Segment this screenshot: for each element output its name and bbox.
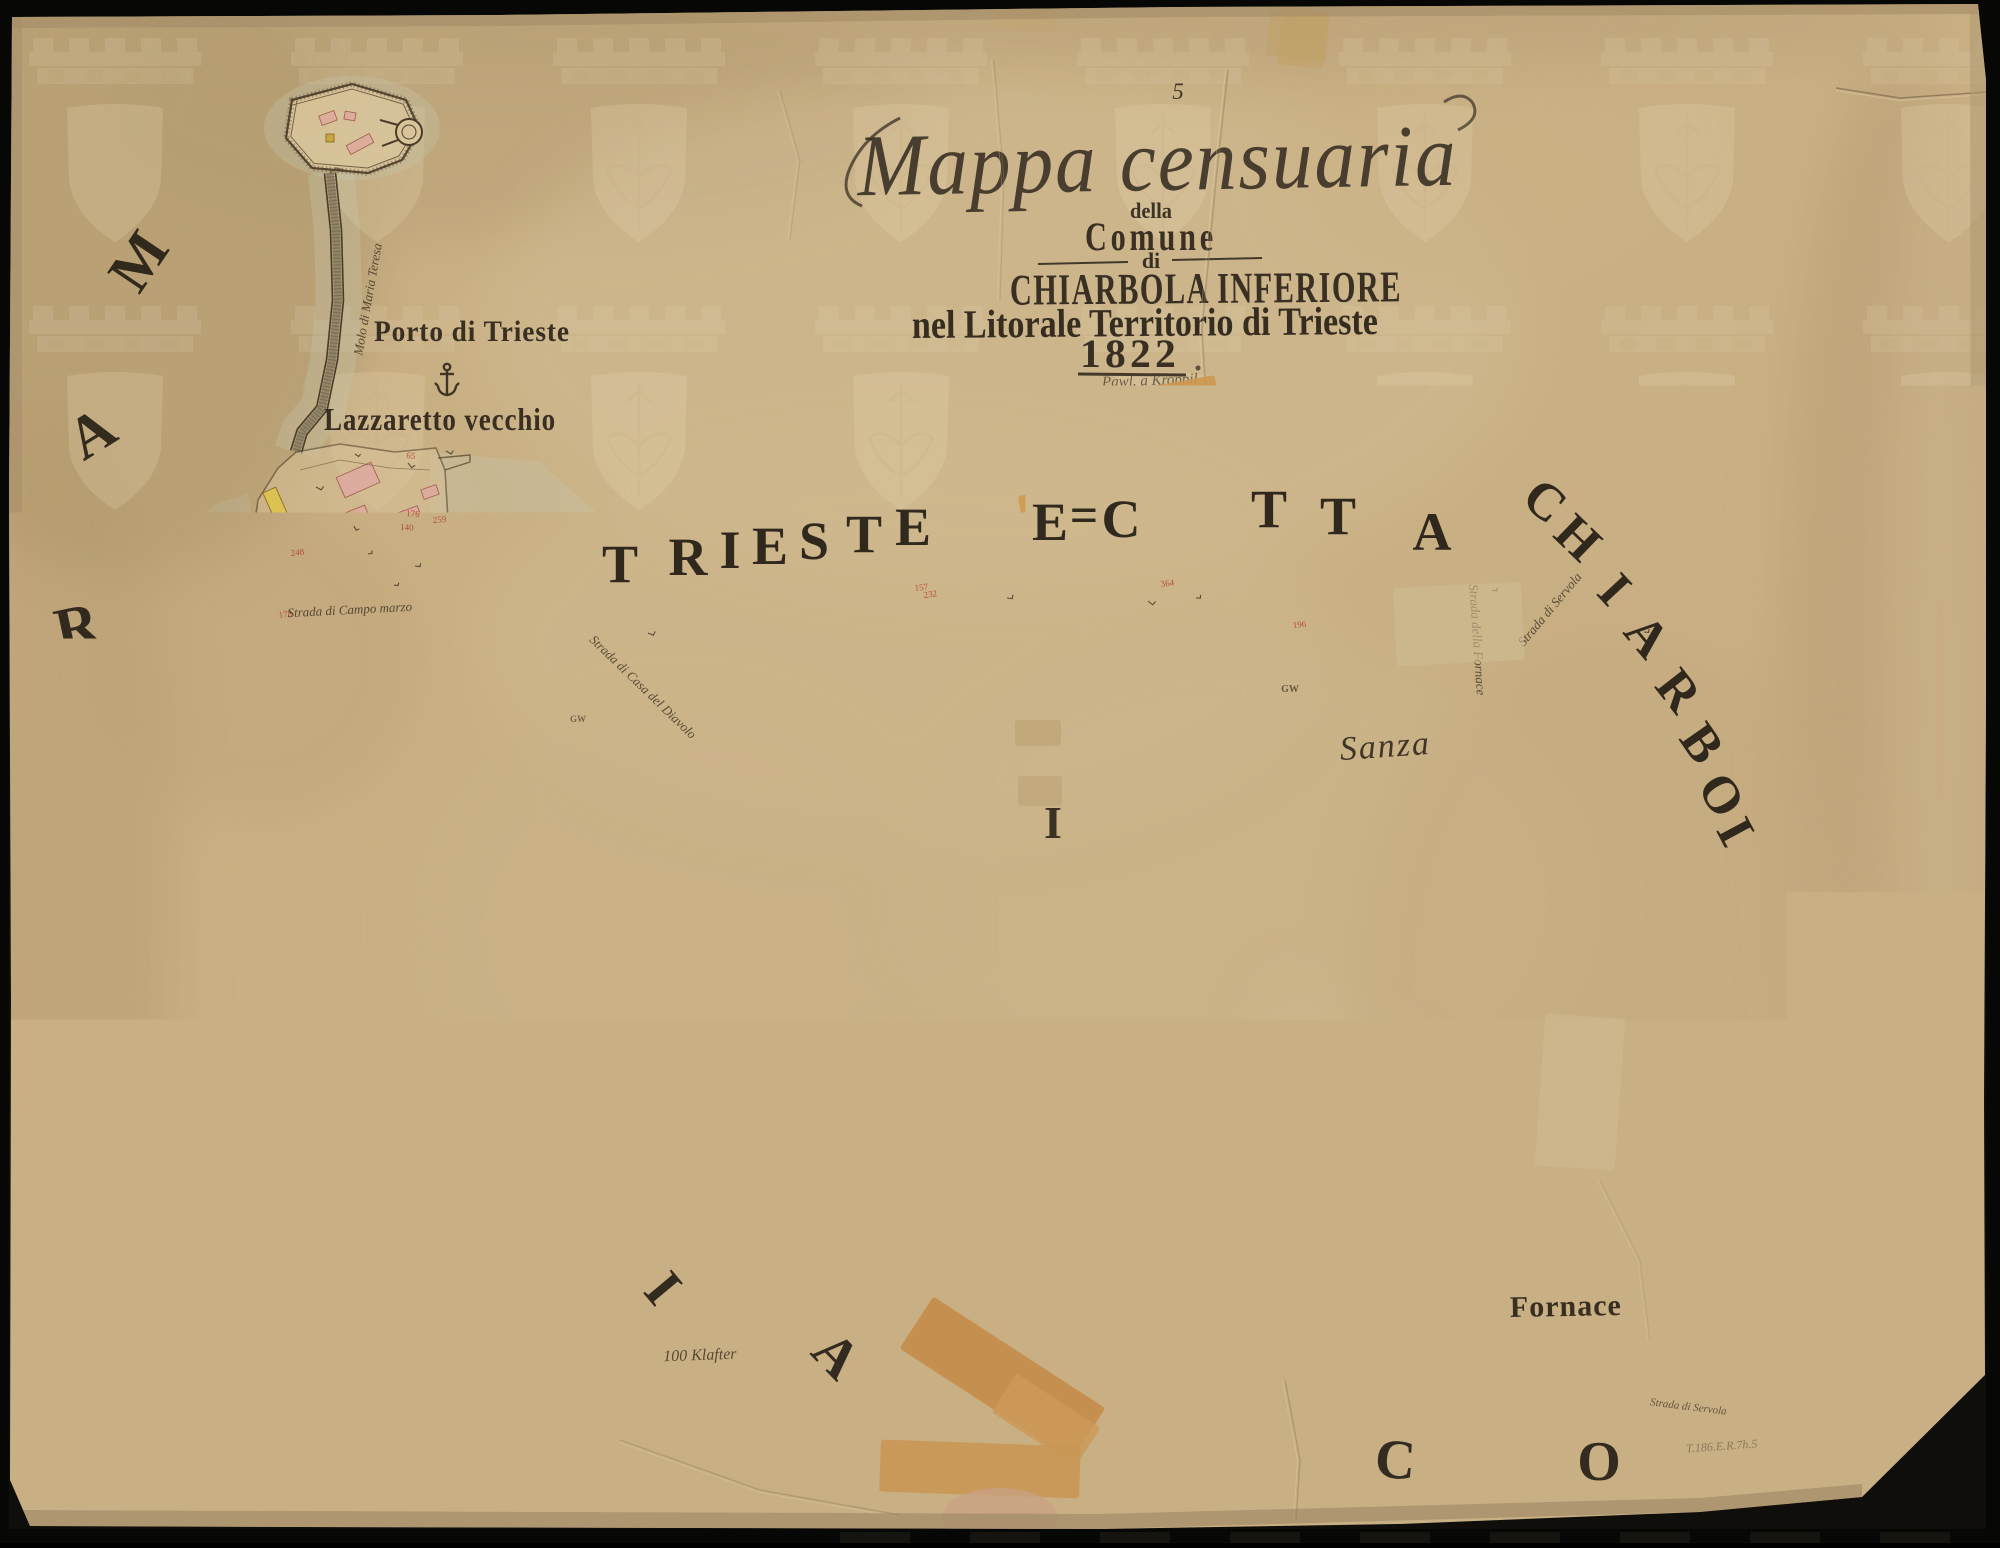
svg-text:143: 143 xyxy=(517,678,532,689)
svg-text:86: 86 xyxy=(994,1238,1004,1248)
svg-text:101: 101 xyxy=(1873,876,1887,887)
svg-text:154: 154 xyxy=(685,704,699,714)
svg-text:22: 22 xyxy=(259,832,268,842)
svg-text:19: 19 xyxy=(1145,1279,1156,1290)
svg-text:242: 242 xyxy=(1508,751,1522,761)
svg-text:Sanza: Sanza xyxy=(1338,725,1432,768)
svg-text:201: 201 xyxy=(688,768,702,779)
svg-text:4: 4 xyxy=(325,1412,329,1421)
svg-text:9: 9 xyxy=(325,1475,329,1484)
svg-text:280: 280 xyxy=(493,717,508,728)
svg-text:233: 233 xyxy=(1503,880,1517,890)
svg-text:207: 207 xyxy=(1119,999,1133,1009)
svg-text:T: T xyxy=(602,534,638,594)
svg-text:305: 305 xyxy=(1683,1364,1698,1375)
svg-text:T: T xyxy=(1320,486,1356,546)
svg-text:381: 381 xyxy=(1113,1159,1127,1170)
svg-text:79: 79 xyxy=(1049,1238,1059,1249)
svg-text:140: 140 xyxy=(400,522,414,532)
svg-text:I: I xyxy=(719,520,740,580)
svg-text:279: 279 xyxy=(1412,1240,1427,1251)
svg-text:53: 53 xyxy=(1037,656,1047,667)
svg-text:190: 190 xyxy=(1144,1300,1158,1310)
svg-text:124: 124 xyxy=(1686,970,1701,981)
svg-text:199: 199 xyxy=(1216,1321,1231,1332)
svg-text:294: 294 xyxy=(540,662,554,672)
svg-text:1: 1 xyxy=(325,1374,329,1383)
svg-text:267: 267 xyxy=(1221,1345,1235,1355)
svg-text:Fornace: Fornace xyxy=(1510,1289,1623,1324)
svg-text:40: 40 xyxy=(238,1354,248,1365)
svg-text:3: 3 xyxy=(324,1399,329,1408)
svg-text:382: 382 xyxy=(1324,1125,1338,1136)
svg-text:74: 74 xyxy=(1814,769,1824,780)
svg-text:Lazzaretto vecchio: Lazzaretto vecchio xyxy=(324,401,556,437)
svg-text:237: 237 xyxy=(1083,788,1098,799)
svg-text:92: 92 xyxy=(1296,1102,1305,1112)
svg-text:35: 35 xyxy=(492,669,502,679)
svg-text:283: 283 xyxy=(1739,1166,1753,1176)
svg-text:60: 60 xyxy=(206,1354,216,1365)
svg-text:146: 146 xyxy=(276,678,291,689)
svg-text:6: 6 xyxy=(325,1437,329,1446)
svg-text:386: 386 xyxy=(976,1088,991,1099)
svg-text:281: 281 xyxy=(1278,1069,1292,1079)
svg-text:0: 0 xyxy=(303,1354,308,1365)
svg-text:196: 196 xyxy=(1292,619,1307,630)
svg-text:21: 21 xyxy=(1649,1057,1658,1067)
svg-text:5: 5 xyxy=(325,1425,329,1434)
svg-text:321: 321 xyxy=(1645,993,1659,1004)
svg-text:303: 303 xyxy=(1035,1246,1050,1257)
svg-text:78: 78 xyxy=(1290,1329,1300,1340)
svg-text:201: 201 xyxy=(1092,1092,1106,1103)
svg-text:327: 327 xyxy=(1023,1276,1038,1287)
svg-text:259: 259 xyxy=(432,514,447,525)
svg-text:St Andrea: St Andrea xyxy=(760,1163,881,1198)
svg-text:E: E xyxy=(752,516,788,576)
svg-text:32: 32 xyxy=(1334,993,1344,1004)
svg-text:50: 50 xyxy=(222,1354,232,1365)
svg-text:189: 189 xyxy=(1574,784,1588,794)
svg-text:T: T xyxy=(1251,479,1287,539)
svg-text:296: 296 xyxy=(934,646,949,657)
svg-text:20: 20 xyxy=(271,1354,281,1365)
svg-text:73: 73 xyxy=(1087,830,1097,841)
svg-text:163: 163 xyxy=(666,832,681,843)
svg-text:90: 90 xyxy=(158,1354,168,1365)
svg-text:380: 380 xyxy=(1306,874,1321,886)
svg-text:181: 181 xyxy=(1246,1347,1260,1358)
svg-text:Casa del Diavolo: Casa del Diavolo xyxy=(552,862,745,898)
svg-text:278: 278 xyxy=(804,1077,819,1088)
svg-text:248: 248 xyxy=(649,766,663,776)
svg-text:176: 176 xyxy=(406,508,421,519)
svg-text:Porto di Trieste: Porto di Trieste xyxy=(374,315,570,348)
svg-text:326: 326 xyxy=(360,863,375,875)
svg-text:384: 384 xyxy=(1197,841,1212,852)
svg-text:248: 248 xyxy=(290,547,305,558)
svg-text:56: 56 xyxy=(1013,1213,1023,1223)
svg-text:290: 290 xyxy=(1307,1120,1322,1131)
svg-text:362: 362 xyxy=(958,1115,972,1126)
svg-text:80: 80 xyxy=(174,1354,184,1365)
svg-text:146: 146 xyxy=(1109,1318,1124,1329)
svg-text:157: 157 xyxy=(914,581,929,593)
svg-text:364: 364 xyxy=(1160,577,1175,589)
svg-text:286: 286 xyxy=(1183,1135,1198,1146)
svg-text:261: 261 xyxy=(1312,1247,1326,1258)
svg-text:E: E xyxy=(1823,1407,1881,1444)
svg-text:282: 282 xyxy=(1277,1141,1291,1152)
svg-text:370: 370 xyxy=(461,787,475,797)
svg-text:290: 290 xyxy=(840,815,854,825)
svg-text:384: 384 xyxy=(1796,892,1811,903)
svg-text:58: 58 xyxy=(529,769,539,779)
svg-text:O: O xyxy=(1577,1431,1621,1493)
svg-text:59: 59 xyxy=(399,756,409,766)
svg-text:1822: 1822 xyxy=(1080,331,1180,376)
svg-text:96: 96 xyxy=(1017,966,1027,976)
svg-text:280: 280 xyxy=(1420,1314,1435,1325)
svg-text:283: 283 xyxy=(1323,1360,1338,1371)
svg-text:5: 5 xyxy=(1172,79,1184,104)
svg-text:O: O xyxy=(1820,1302,1880,1346)
svg-text:231: 231 xyxy=(1411,1207,1426,1219)
svg-text:R: R xyxy=(669,527,709,587)
svg-text:53: 53 xyxy=(1409,1010,1419,1021)
svg-text:10: 10 xyxy=(287,1354,297,1365)
svg-text:389: 389 xyxy=(1177,773,1191,783)
svg-text:182: 182 xyxy=(1162,1254,1176,1265)
svg-text:359: 359 xyxy=(1317,1374,1332,1385)
svg-text:37: 37 xyxy=(1167,721,1177,731)
svg-text:240: 240 xyxy=(1380,1074,1394,1084)
svg-text:240: 240 xyxy=(1003,757,1018,768)
svg-text:365: 365 xyxy=(1296,1353,1311,1364)
svg-text:20: 20 xyxy=(618,694,628,704)
svg-text:385: 385 xyxy=(788,895,802,905)
svg-text:237: 237 xyxy=(836,966,851,977)
svg-text:A: A xyxy=(1413,502,1452,562)
svg-text:148: 148 xyxy=(902,1121,917,1132)
svg-text:272: 272 xyxy=(1104,1218,1119,1230)
svg-text:175: 175 xyxy=(1044,983,1059,995)
svg-text:159: 159 xyxy=(994,1253,1009,1264)
svg-text:10: 10 xyxy=(325,1488,333,1497)
svg-text:107: 107 xyxy=(1254,1252,1269,1263)
svg-text:106: 106 xyxy=(1511,1169,1526,1181)
svg-text:174: 174 xyxy=(272,658,287,669)
svg-text:18: 18 xyxy=(1068,836,1078,846)
svg-text:204: 204 xyxy=(1605,1005,1620,1016)
svg-text:106: 106 xyxy=(1081,1187,1096,1198)
svg-text:239: 239 xyxy=(1221,1217,1235,1227)
svg-text:94: 94 xyxy=(731,702,741,713)
svg-text:S: S xyxy=(799,511,829,571)
svg-text:180: 180 xyxy=(1502,1218,1517,1229)
svg-text:109: 109 xyxy=(1302,1281,1316,1291)
svg-text:263: 263 xyxy=(944,1173,959,1184)
svg-text:173: 173 xyxy=(1356,1369,1370,1379)
svg-text:114: 114 xyxy=(1278,716,1293,727)
svg-text:269: 269 xyxy=(515,735,530,746)
svg-text:342: 342 xyxy=(965,1197,979,1208)
svg-text:317: 317 xyxy=(1107,1005,1121,1015)
svg-text:289: 289 xyxy=(854,776,868,786)
svg-text:Monte Cuco: Monte Cuco xyxy=(1510,926,1689,969)
svg-text:GW: GW xyxy=(1281,684,1299,695)
svg-text:70: 70 xyxy=(190,1354,200,1365)
svg-text:65: 65 xyxy=(406,450,417,461)
svg-text:228: 228 xyxy=(511,980,526,992)
svg-text:38: 38 xyxy=(1723,1190,1733,1200)
svg-text:112: 112 xyxy=(705,772,719,782)
svg-text:25: 25 xyxy=(453,1017,463,1027)
svg-text:137: 137 xyxy=(904,767,919,778)
svg-text:347: 347 xyxy=(1236,1001,1250,1011)
svg-text:177: 177 xyxy=(551,712,566,723)
svg-text:E: E xyxy=(895,497,931,557)
svg-text:60: 60 xyxy=(1481,1074,1491,1085)
svg-text:157: 157 xyxy=(1387,1327,1401,1337)
svg-text:234: 234 xyxy=(1698,1053,1713,1065)
svg-text:340: 340 xyxy=(1546,999,1560,1009)
svg-text:207: 207 xyxy=(1481,714,1496,726)
svg-text:30: 30 xyxy=(254,1354,265,1365)
svg-text:221: 221 xyxy=(1368,1245,1382,1256)
svg-text:303: 303 xyxy=(1210,1268,1224,1278)
svg-text:I: I xyxy=(1192,481,1213,541)
svg-text:R: R xyxy=(1824,1356,1882,1397)
svg-text:180: 180 xyxy=(1095,980,1110,992)
svg-text:287: 287 xyxy=(1749,1028,1764,1040)
svg-text:T: T xyxy=(846,504,882,564)
svg-text:2: 2 xyxy=(325,1386,329,1395)
svg-text:C: C xyxy=(1373,1428,1418,1493)
svg-text:GW: GW xyxy=(570,714,586,724)
svg-text:168: 168 xyxy=(1580,1359,1595,1370)
svg-text:153: 153 xyxy=(1693,958,1707,968)
svg-text:142: 142 xyxy=(711,670,725,680)
svg-text:100 Klafter: 100 Klafter xyxy=(663,1346,738,1366)
svg-text:Chiarbola inferiore: Chiarbola inferiore xyxy=(1012,889,1427,953)
svg-text:251: 251 xyxy=(1486,1349,1501,1361)
svg-text:177: 177 xyxy=(1325,1066,1340,1077)
svg-text:C: C xyxy=(1102,489,1141,549)
svg-text:57: 57 xyxy=(378,967,388,977)
svg-text:256: 256 xyxy=(1554,1251,1569,1262)
svg-text:58: 58 xyxy=(1190,1265,1200,1275)
svg-text:226: 226 xyxy=(1082,1331,1096,1341)
svg-text:=: = xyxy=(1070,487,1099,543)
svg-text:100: 100 xyxy=(485,1352,500,1363)
svg-text:232: 232 xyxy=(1525,1014,1539,1024)
svg-text:26: 26 xyxy=(1794,1374,1804,1385)
svg-text:27: 27 xyxy=(867,1011,877,1022)
svg-text:84: 84 xyxy=(1126,1100,1136,1111)
svg-text:373: 373 xyxy=(1418,810,1433,821)
svg-text:8: 8 xyxy=(325,1463,329,1472)
svg-text:109: 109 xyxy=(1490,980,1504,990)
svg-text:E: E xyxy=(1032,492,1068,552)
